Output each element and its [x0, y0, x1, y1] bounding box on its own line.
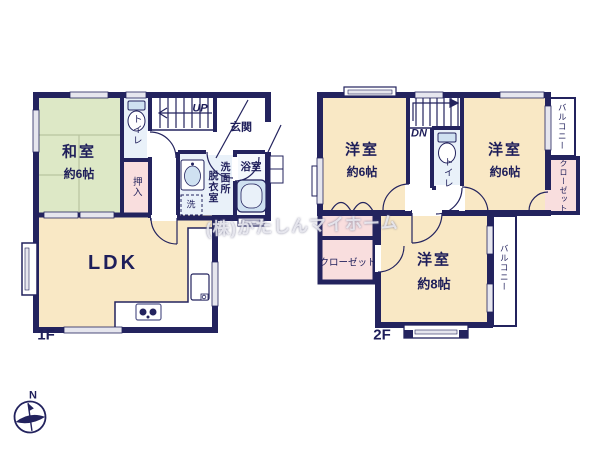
balcony-side-label: バルコニー	[500, 244, 509, 292]
window	[500, 92, 544, 98]
western-main-label: 洋室	[417, 253, 451, 268]
western-right-label: 洋室	[488, 143, 522, 158]
western-right-size: 約6帖	[490, 166, 521, 178]
ldk-label: LDK	[88, 253, 138, 273]
toilet-1f-label: トイレ	[131, 114, 141, 146]
compass-icon	[12, 399, 47, 434]
oshiire-label: 押入	[131, 177, 141, 198]
window	[487, 284, 493, 312]
stairs-up-label: UP	[192, 104, 207, 115]
window	[33, 110, 39, 152]
entrance-label: 玄関	[230, 123, 252, 134]
sink-icon	[181, 160, 204, 190]
closet-right-label: クローゼット	[559, 159, 567, 213]
sliding-door	[80, 212, 114, 218]
washer-label: 洗	[186, 201, 195, 210]
washitsu-size: 約6帖	[64, 168, 95, 180]
western-left-label: 洋室	[345, 143, 379, 158]
western-main-size: 約8帖	[417, 278, 450, 291]
window	[64, 327, 122, 333]
window	[126, 92, 146, 98]
window	[212, 262, 218, 306]
window	[487, 226, 493, 254]
floor-2f-label: 2F	[373, 328, 391, 343]
dressing-room-label: 脱衣室	[206, 171, 216, 204]
washitsu-label: 和室	[62, 145, 96, 160]
window	[545, 106, 551, 150]
balcony-top-label: バルコニー	[558, 103, 567, 151]
stairs-down-label: DN	[411, 129, 427, 140]
sliding-door	[44, 212, 78, 218]
bathtub-icon	[237, 180, 266, 212]
window	[317, 158, 323, 204]
bath-label: 浴室	[241, 162, 262, 173]
window-bump-bottom	[404, 325, 468, 338]
window	[415, 92, 443, 98]
toilet-2f-label: トイレ	[442, 157, 452, 189]
window-bump-top	[344, 87, 396, 96]
compass-north-label: N	[29, 391, 37, 402]
washroom-label: 洗面所	[218, 162, 228, 195]
floor-1f-label: 1F	[37, 328, 55, 343]
window	[70, 92, 108, 98]
closet-main-label: クローゼット	[319, 258, 376, 268]
kitchen-sink-icon	[191, 274, 209, 300]
stove-icon	[136, 304, 161, 320]
western-left-size: 約6帖	[347, 166, 378, 178]
bay-window	[22, 243, 37, 295]
floor-plan: 和室 約6帖 トイレ 押入 脱衣室 洗面所 洗 浴室 玄関 UP LDK 1F …	[0, 0, 600, 449]
window-bump-left	[312, 166, 317, 196]
